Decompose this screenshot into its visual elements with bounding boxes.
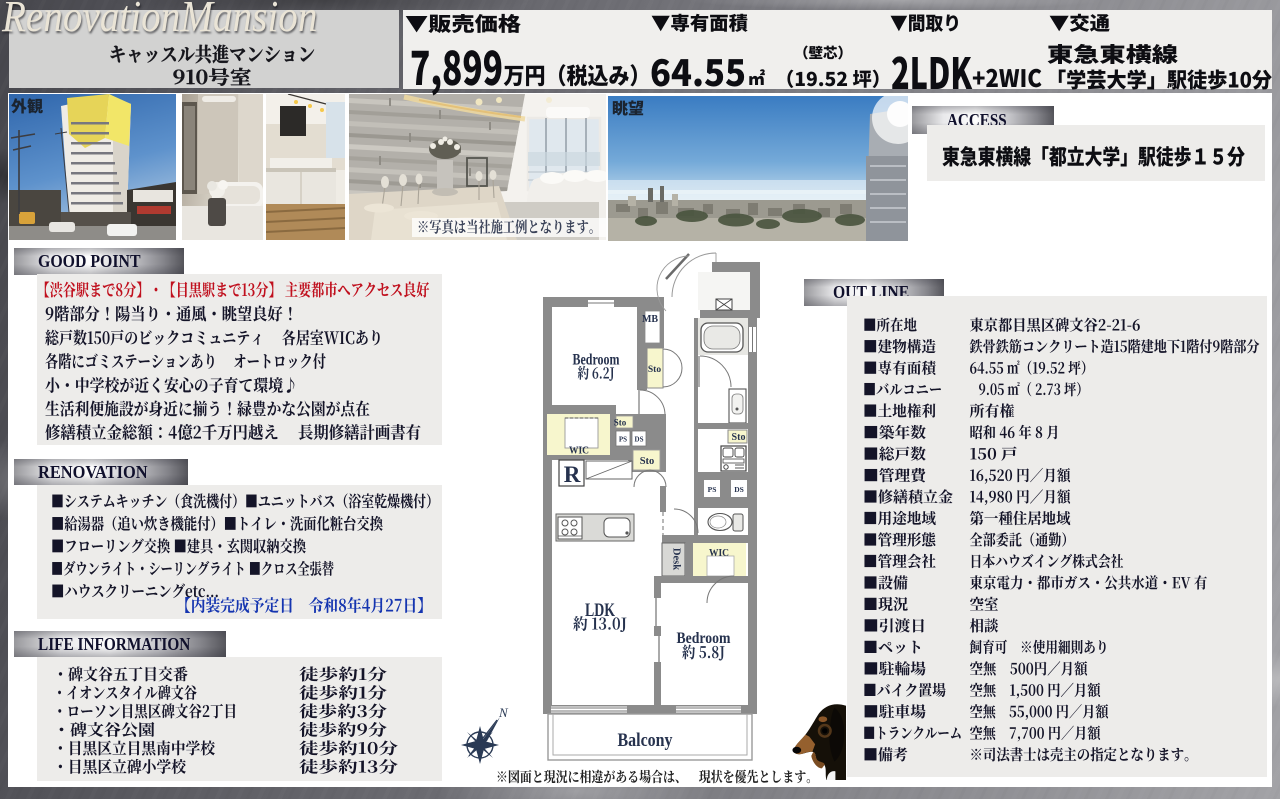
- svg-text:Sto: Sto: [640, 456, 655, 467]
- svg-text:Balcony: Balcony: [618, 730, 673, 751]
- svg-text:PS: PS: [708, 485, 717, 494]
- svg-text:LDK: LDK: [585, 600, 615, 621]
- svg-text:DS: DS: [635, 436, 644, 444]
- svg-text:DS: DS: [734, 485, 744, 494]
- svg-text:Bedroom: Bedroom: [573, 352, 621, 369]
- svg-text:N: N: [498, 705, 509, 720]
- svg-text:R: R: [564, 462, 581, 487]
- svg-text:Sto: Sto: [732, 432, 746, 443]
- svg-text:Bedroom: Bedroom: [677, 630, 732, 647]
- svg-text:WIC: WIC: [709, 548, 729, 559]
- svg-text:PS: PS: [619, 436, 627, 444]
- svg-text:Sto: Sto: [648, 365, 661, 375]
- svg-text:Sto: Sto: [614, 418, 627, 428]
- svg-text:MB: MB: [642, 314, 658, 325]
- svg-text:WIC: WIC: [569, 446, 589, 457]
- svg-text:Desk: Desk: [671, 548, 682, 570]
